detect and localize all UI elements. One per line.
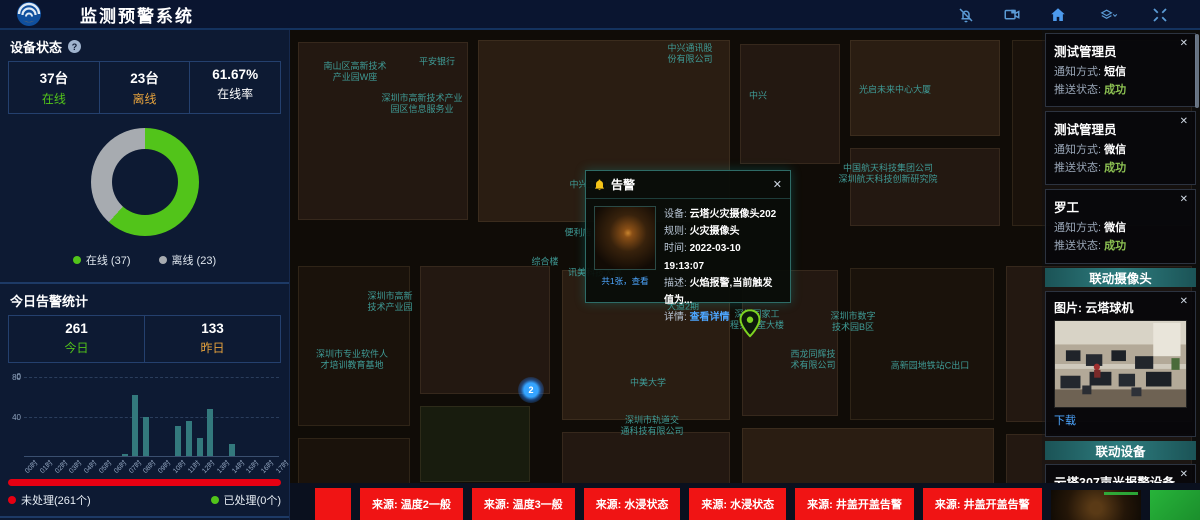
- hour-bar: [229, 444, 235, 456]
- close-icon[interactable]: ✕: [1180, 194, 1188, 205]
- offline-label: 离线: [102, 90, 188, 107]
- alert-row-desc: 描述: 火焰报警,当前触发值为...: [664, 275, 782, 309]
- legend-online-label: 在线 (37): [86, 252, 131, 268]
- online-count: 37台: [11, 67, 97, 87]
- hour-bar: [175, 426, 181, 456]
- camera-image-title: 图片: 云塔球机: [1054, 299, 1187, 316]
- stat-online: 37台 在线: [9, 62, 100, 113]
- notify-method-label: 通知方式:: [1054, 66, 1101, 78]
- bar-chart-plot: 80 40 0: [24, 377, 279, 457]
- alert-row-detail: 详情: 查看详情: [664, 309, 782, 326]
- layers-dropdown-icon[interactable]: [1094, 5, 1124, 25]
- view-detail-link[interactable]: 查看详情: [690, 312, 730, 323]
- fullscreen-icon[interactable]: [1150, 5, 1170, 25]
- map-block: [850, 148, 1000, 226]
- hour-bar: [207, 409, 213, 456]
- alert-desc-label: 描述:: [664, 278, 687, 289]
- map-label: 光启未来中心大厦: [859, 84, 931, 95]
- alarm-bell-icon: [594, 179, 605, 191]
- yesterday-count: 133: [147, 321, 278, 336]
- map-label: 中兴: [749, 90, 767, 101]
- notify-recipient: 罗工: [1054, 197, 1187, 216]
- notify-status-value: 成功: [1104, 240, 1126, 252]
- map-block: [740, 44, 840, 164]
- hour-tick-label: 17时: [274, 458, 290, 476]
- device-status-donut-chart: [91, 128, 199, 236]
- hour-tick-label: 18时: [288, 458, 290, 476]
- donut-chart-wrap: [0, 128, 289, 236]
- linked-camera-header: 联动摄像头: [1045, 268, 1196, 287]
- progress-legend: 未处理(261个) 已处理(0个): [8, 492, 281, 508]
- close-icon[interactable]: ✕: [1180, 296, 1188, 307]
- cluster-count: 2: [528, 385, 533, 395]
- unhandled-progress-bar: [8, 479, 281, 486]
- notification-card: ✕ 罗工 通知方式: 微信 推送状态: 成功: [1045, 189, 1196, 263]
- notify-status-row: 推送状态: 成功: [1054, 82, 1187, 100]
- notify-method-label: 通知方式:: [1054, 144, 1101, 156]
- page-title: 监测预警系统: [80, 2, 194, 27]
- linked-device-header: 联动设备: [1045, 441, 1196, 460]
- handled-legend: 已处理(0个): [211, 492, 281, 508]
- hour-tick-label: 06时: [111, 458, 129, 476]
- alarm-ticker: 来源: 温度2一般来源: 温度3一般来源: 水浸状态来源: 水浸状态来源: 井盖…: [290, 483, 1200, 520]
- notify-recipient: 测试管理员: [1054, 119, 1187, 138]
- legend-dot-online: [73, 256, 81, 264]
- device-status-table: 37台 在线 23台 离线 61.67% 在线率: [8, 61, 281, 114]
- today-alarms-title: 今日告警统计: [10, 291, 88, 310]
- map-label: 深圳市高新技术产业 园区信息服务业: [381, 93, 462, 116]
- notify-status-label: 推送状态:: [1054, 84, 1101, 96]
- alert-rule-value: 火灾摄像头: [690, 226, 740, 237]
- ticker-snapshot-dark[interactable]: [1051, 490, 1142, 520]
- close-icon[interactable]: ✕: [1180, 469, 1188, 480]
- camera-monitor-icon[interactable]: [1002, 5, 1022, 25]
- hour-bar: [197, 438, 203, 456]
- notify-method-row: 通知方式: 短信: [1054, 64, 1187, 82]
- linked-camera-card: ✕ 图片: 云塔球机 下载: [1045, 291, 1196, 437]
- notify-method-row: 通知方式: 微信: [1054, 142, 1187, 160]
- alert-time-label: 时间:: [664, 243, 687, 254]
- map-label: 深圳市数字 技术园B区: [830, 311, 875, 334]
- month-alarms-header: 本月告警统计: [0, 516, 289, 520]
- alert-snapshot-image[interactable]: [594, 206, 656, 270]
- notify-status-value: 成功: [1104, 84, 1126, 96]
- alert-detail-rows: 设备: 云塔火灾摄像头202 规则: 火灾摄像头 时间: 2022-03-10 …: [664, 206, 782, 326]
- notify-status-label: 推送状态:: [1054, 162, 1101, 174]
- today-alarms-header: 今日告警统计: [0, 282, 289, 315]
- unhandled-label: 未处理(261个): [21, 492, 91, 508]
- hour-bar: [186, 421, 192, 456]
- map-label: 中美大学: [630, 377, 666, 388]
- notification-card: ✕ 测试管理员 通知方式: 短信 推送状态: 成功: [1045, 33, 1196, 107]
- legend-dot-offline: [159, 256, 167, 264]
- device-status-header: 设备状态 ?: [0, 30, 289, 61]
- map-label: 中兴通讯股 份有限公司: [667, 43, 712, 66]
- unhandled-legend: 未处理(261个): [8, 492, 91, 508]
- map-cluster-marker[interactable]: 2: [518, 377, 544, 403]
- alarm-chip[interactable]: 来源: 水浸状态: [689, 488, 786, 520]
- alarm-chip[interactable]: 来源: 温度2一般: [360, 488, 463, 520]
- map-label: 平安银行: [419, 56, 455, 67]
- alert-popup-titlebar: 告警 ✕: [586, 171, 790, 199]
- notify-method-row: 通知方式: 微信: [1054, 220, 1187, 238]
- alert-thumb-column: 共1张，查看: [594, 206, 656, 326]
- dashboard-root: 监测预警系统 设备状态 ? 37台: [0, 0, 1200, 520]
- today-label: 今日: [11, 339, 142, 356]
- alert-popup-body: 共1张，查看 设备: 云塔火灾摄像头202 规则: 火灾摄像头 时间: 2022…: [586, 199, 790, 333]
- alarm-chip[interactable]: [315, 488, 351, 520]
- notify-status-row: 推送状态: 成功: [1054, 160, 1187, 178]
- bar-chart-x-labels: 00时01时02时03时04时05时06时07时08时09时10时11时12时1…: [24, 459, 279, 472]
- legend-offline-label: 离线 (23): [172, 252, 217, 268]
- app-header: 监测预警系统: [0, 0, 1200, 30]
- online-rate-value: 61.67%: [192, 67, 278, 82]
- alert-row-rule: 规则: 火灾摄像头: [664, 223, 782, 240]
- header-toolbar: [956, 0, 1170, 30]
- map-block: [850, 268, 994, 420]
- alert-snapshot-caption[interactable]: 共1张，查看: [594, 275, 656, 287]
- right-notification-panel: ✕ 测试管理员 通知方式: 短信 推送状态: 成功 ✕ 测试管理员 通知方式: …: [1042, 30, 1200, 520]
- donut-legend: 在线 (37) 离线 (23): [0, 252, 289, 268]
- online-label: 在线: [11, 90, 97, 107]
- scrollbar[interactable]: [1195, 34, 1199, 108]
- stat-offline: 23台 离线: [100, 62, 191, 113]
- legend-offline: 离线 (23): [159, 252, 217, 268]
- ticker-snapshot-green[interactable]: [1150, 490, 1200, 520]
- alert-device-value: 云塔火灾摄像头202: [690, 209, 777, 220]
- alert-row-device: 设备: 云塔火灾摄像头202: [664, 206, 782, 223]
- map-label: 深圳市高新 技术产业园: [367, 291, 412, 314]
- bell-muted-icon[interactable]: [956, 5, 976, 25]
- today-alarms-table: 261 今日 133 昨日: [8, 315, 281, 363]
- map-block: [420, 266, 550, 394]
- notification-card: ✕ 测试管理员 通知方式: 微信 推送状态: 成功: [1045, 111, 1196, 185]
- hour-bar: [132, 395, 138, 456]
- yesterday-label: 昨日: [147, 339, 278, 356]
- alarm-chip[interactable]: 来源: 水浸状态: [584, 488, 681, 520]
- close-icon[interactable]: ✕: [1180, 116, 1188, 127]
- alarm-chip[interactable]: 来源: 井盖开盖告警: [923, 488, 1042, 520]
- app-logo-icon: [16, 1, 42, 27]
- notify-status-value: 成功: [1104, 162, 1126, 174]
- left-stats-panel: 设备状态 ? 37台 在线 23台 离线 61.67% 在线率 在线 (37): [0, 30, 290, 520]
- map-label: 高新园地铁站C出口: [891, 360, 970, 371]
- notify-status-row: 推送状态: 成功: [1054, 238, 1187, 256]
- notify-method-value: 微信: [1104, 144, 1126, 156]
- hour-bar: [122, 454, 128, 456]
- notify-method-label: 通知方式:: [1054, 222, 1101, 234]
- online-rate-label: 在线率: [192, 85, 278, 102]
- legend-dot-unhandled: [8, 496, 16, 504]
- hourly-alarm-bar-chart: 80 40 0 00时01时02时03时04时05时06时07时08时09时10…: [8, 371, 281, 469]
- alarm-chip-strip: 来源: 温度2一般来源: 温度3一般来源: 水浸状态来源: 水浸状态来源: 井盖…: [315, 488, 1042, 520]
- alert-row-time: 时间: 2022-03-10 19:13:07: [664, 240, 782, 274]
- alert-device-label: 设备:: [664, 209, 687, 220]
- map-label: 综合楼: [531, 256, 558, 267]
- legend-online: 在线 (37): [73, 252, 131, 268]
- map-block: [420, 406, 530, 482]
- alert-detail-label: 详情:: [664, 312, 687, 323]
- bar-series: [24, 377, 279, 456]
- handled-label: 已处理(0个): [224, 492, 281, 508]
- notify-recipient: 测试管理员: [1054, 41, 1187, 60]
- close-icon[interactable]: ✕: [1180, 38, 1188, 49]
- alarm-chip[interactable]: 来源: 井盖开盖告警: [795, 488, 914, 520]
- offline-count: 23台: [102, 67, 188, 87]
- stat-online-rate: 61.67% 在线率: [190, 62, 280, 113]
- download-link[interactable]: 下载: [1054, 412, 1076, 428]
- map-label: 西龙同辉技 术有限公司: [790, 349, 835, 372]
- alert-rule-label: 规则:: [664, 226, 687, 237]
- map-label: 深圳市轨道交 通科技有限公司: [620, 415, 683, 438]
- notify-method-value: 微信: [1104, 222, 1126, 234]
- close-icon[interactable]: ✕: [773, 178, 782, 191]
- ytick-0: 0: [9, 372, 21, 460]
- map-label: 深圳市专业软件人 才培训教育基地: [316, 349, 388, 372]
- map-label: 南山区高新技术 产业园W座: [323, 61, 386, 84]
- alert-popup-title: 告警: [611, 176, 767, 193]
- alarm-chip[interactable]: 来源: 温度3一般: [472, 488, 575, 520]
- hour-bar: [143, 417, 149, 457]
- legend-dot-handled: [211, 496, 219, 504]
- stat-today: 261 今日: [9, 316, 145, 362]
- stat-yesterday: 133 昨日: [145, 316, 280, 362]
- notify-method-value: 短信: [1104, 66, 1126, 78]
- map-label: 中国航天科技集团公司 深圳航天科技创新研究院: [838, 163, 937, 186]
- camera-photo[interactable]: [1054, 320, 1187, 408]
- alert-popup: 告警 ✕ 共1张，查看 设备: 云塔火灾摄像头202 规则: 火灾摄像头 时间:…: [585, 170, 791, 303]
- home-icon[interactable]: [1048, 5, 1068, 25]
- notify-status-label: 推送状态:: [1054, 240, 1101, 252]
- today-count: 261: [11, 321, 142, 336]
- device-status-title: 设备状态: [10, 37, 62, 56]
- help-icon[interactable]: ?: [68, 40, 81, 53]
